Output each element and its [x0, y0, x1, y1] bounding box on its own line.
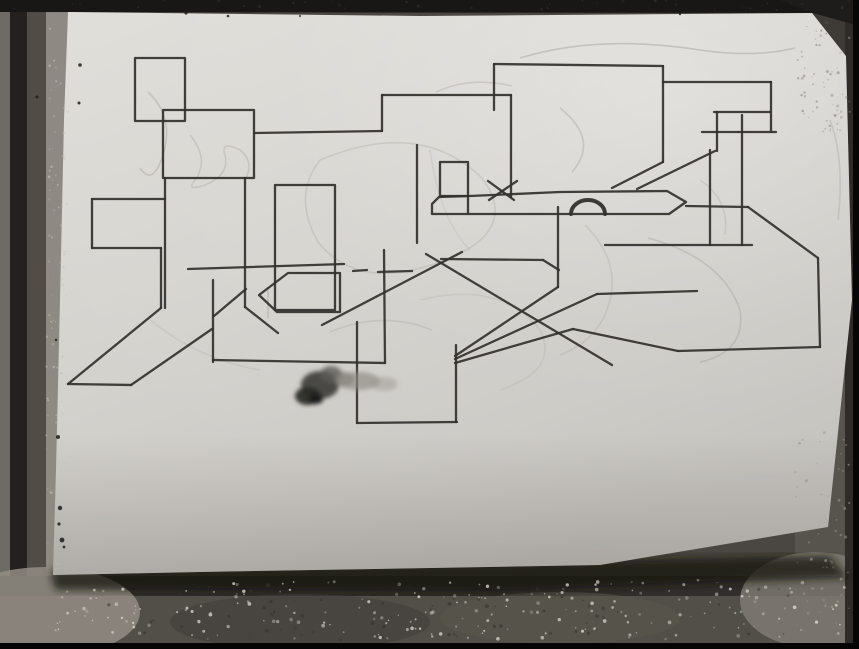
tile-speckle	[431, 605, 433, 607]
tile-speckle	[796, 486, 798, 488]
tile-speckle	[121, 617, 123, 619]
tile-speckle	[137, 6, 139, 8]
bg-shape	[853, 0, 859, 649]
tile-speckle	[453, 598, 455, 600]
dark-speck	[679, 13, 681, 15]
photo-scene	[0, 0, 859, 649]
tile-speckle	[431, 635, 433, 637]
tile-speckle	[685, 596, 689, 600]
tile-speckle	[841, 505, 843, 507]
tile-speckle	[801, 581, 804, 584]
tile-speckle	[456, 601, 458, 603]
tile-speckle	[237, 602, 239, 604]
tile-speckle	[107, 617, 109, 619]
tile-speckle	[507, 628, 508, 629]
tile-speckle	[506, 598, 509, 601]
tile-speckle	[611, 606, 614, 609]
tile-speckle	[845, 96, 848, 99]
tile-speckle	[530, 610, 534, 614]
tile-speckle	[808, 117, 809, 118]
tile-speckle	[816, 30, 817, 31]
tile-speckle	[266, 583, 270, 587]
tile-speckle	[494, 605, 496, 607]
tile-speckle	[60, 372, 62, 374]
tile-speckle	[588, 605, 591, 608]
tile-speckle	[60, 83, 62, 85]
tile-speckle	[293, 612, 295, 614]
tile-speckle	[566, 583, 569, 586]
tile-speckle	[610, 583, 612, 585]
tile-speckle	[755, 596, 758, 599]
tile-speckle	[839, 130, 841, 132]
tile-speckle	[406, 628, 409, 631]
tile-speckle	[668, 621, 672, 625]
tile-speckle	[63, 253, 65, 255]
tile-speckle	[541, 636, 545, 640]
tile-speckle	[62, 356, 64, 358]
tile-speckle	[63, 289, 64, 290]
tile-speckle	[51, 327, 53, 329]
tile-speckle	[479, 584, 481, 586]
tile-speckle	[185, 590, 187, 592]
tile-speckle	[62, 132, 65, 135]
dark-speck	[63, 546, 66, 549]
tile-speckle	[736, 634, 740, 638]
tile-speckle	[747, 632, 750, 635]
tile-speckle	[243, 5, 245, 7]
tile-speckle	[848, 502, 850, 504]
tile-speckle	[825, 33, 827, 35]
tile-speckle	[778, 618, 780, 620]
tile-speckle	[312, 631, 315, 634]
tile-speckle	[365, 605, 367, 607]
dark-speck	[60, 538, 65, 543]
tile-speckle	[831, 606, 833, 608]
tile-speckle	[831, 94, 834, 97]
tile-speckle	[729, 606, 731, 608]
tile-speckle	[52, 343, 55, 346]
tile-speckle	[832, 608, 834, 610]
tile-speckle	[638, 613, 641, 616]
tile-speckle	[704, 613, 706, 615]
dark-speck	[78, 102, 81, 105]
tile-speckle	[801, 77, 804, 80]
tile-speckle	[729, 588, 732, 591]
tile-speckle	[840, 453, 842, 455]
tile-speckle	[834, 530, 837, 533]
dark-speck	[58, 506, 62, 510]
tile-speckle	[48, 260, 50, 262]
tile-speckle	[58, 206, 60, 208]
tile-speckle	[794, 471, 797, 474]
tile-speckle	[836, 67, 837, 68]
tile-speckle	[837, 601, 839, 603]
tile-speckle	[822, 131, 824, 133]
tile-speckle	[815, 44, 817, 46]
tile-speckle	[834, 114, 837, 117]
tile-speckle	[111, 631, 114, 634]
tile-speckle	[784, 607, 786, 609]
tile-speckle	[837, 129, 838, 130]
tile-speckle	[382, 625, 385, 628]
tile-speckle	[748, 595, 750, 597]
tile-speckle	[52, 366, 55, 369]
tile-speckle	[67, 98, 68, 99]
tile-speckle	[816, 106, 819, 109]
tile-speckle	[823, 82, 824, 83]
tile-speckle	[63, 340, 65, 342]
tile-speckle	[59, 558, 60, 559]
tile-speckle	[414, 592, 416, 594]
bg-shape	[10, 0, 27, 649]
tile-speckle	[836, 109, 838, 111]
tile-speckle	[431, 610, 434, 613]
tile-speckle	[491, 613, 493, 615]
tile-speckle	[826, 21, 828, 23]
tile-speckle	[628, 637, 630, 639]
tile-speckle	[65, 383, 66, 384]
tile-speckle	[385, 622, 387, 624]
tile-speckle	[837, 468, 839, 470]
tile-speckle	[477, 597, 481, 601]
tile-speckle	[848, 608, 849, 609]
tile-speckle	[801, 110, 804, 113]
tile-speckle	[803, 592, 806, 595]
tile-speckle	[816, 463, 818, 465]
tile-speckle	[848, 464, 850, 466]
tile-speckle	[61, 319, 63, 321]
tile-speckle	[61, 401, 63, 403]
tile-speckle	[53, 320, 55, 322]
tile-speckle	[602, 616, 605, 619]
tile-speckle	[102, 590, 105, 593]
tile-speckle	[236, 583, 239, 586]
tile-speckle	[575, 630, 578, 633]
tile-speckle	[482, 632, 484, 634]
photo-of-drawing	[0, 0, 859, 649]
tile-speckle	[581, 630, 584, 633]
tile-speckle	[778, 588, 780, 590]
tile-speckle	[66, 203, 68, 205]
tile-speckle	[60, 224, 63, 227]
tile-speckle	[651, 622, 653, 624]
tile-speckle	[843, 439, 845, 441]
tile-speckle	[481, 597, 483, 599]
tile-speckle	[249, 589, 252, 592]
tile-speckle	[344, 7, 346, 9]
tile-speckle	[842, 94, 843, 95]
tile-speckle	[601, 606, 605, 610]
tile-speckle	[53, 115, 55, 117]
tile-speckle	[848, 37, 850, 39]
tile-speckle	[762, 4, 764, 6]
tile-speckle	[483, 630, 485, 632]
tile-speckle	[202, 630, 205, 633]
tile-speckle	[582, 600, 583, 601]
tile-speckle	[821, 587, 824, 590]
tile-speckle	[409, 585, 411, 587]
tile-speckle	[807, 612, 810, 615]
tile-speckle	[754, 600, 757, 603]
tile-speckle	[804, 68, 805, 69]
tile-speckle	[520, 591, 524, 595]
tile-speckle	[561, 591, 564, 594]
tile-speckle	[48, 234, 50, 236]
tile-speckle	[57, 563, 59, 565]
tile-speckle	[54, 131, 57, 134]
tile-speckle	[48, 175, 51, 178]
tile-speckle	[84, 615, 86, 617]
tile-speckle	[66, 295, 67, 296]
tile-speckle	[56, 367, 58, 369]
tile-speckle	[139, 608, 141, 610]
tile-speckle	[738, 627, 740, 629]
tile-speckle	[85, 610, 88, 613]
tile-speckle	[575, 627, 577, 629]
tile-speckle	[236, 593, 237, 594]
tile-speckle	[54, 629, 56, 631]
tile-speckle	[836, 519, 838, 521]
tile-speckle	[843, 507, 846, 510]
tile-speckle	[242, 590, 245, 593]
tile-speckle	[53, 277, 54, 278]
tile-speckle	[297, 620, 301, 624]
tile-speckle	[824, 128, 826, 130]
tile-speckle	[54, 568, 56, 570]
tile-speckle	[800, 51, 802, 53]
tile-speckle	[382, 602, 384, 604]
tile-speckle	[485, 604, 489, 608]
dark-speck	[184, 11, 187, 14]
tile-speckle	[65, 251, 66, 252]
tile-speckle	[718, 603, 721, 606]
tile-speckle	[388, 620, 389, 621]
tile-speckle	[546, 5, 548, 7]
tile-speckle	[840, 116, 843, 119]
tile-speckle	[613, 600, 616, 603]
tile-speckle	[49, 27, 52, 30]
tile-speckle	[65, 153, 66, 154]
tile-speckle	[343, 631, 345, 633]
tile-speckle	[293, 626, 297, 630]
tile-speckle	[198, 586, 200, 588]
tile-speckle	[71, 3, 73, 5]
tile-speckle	[386, 637, 388, 639]
tile-speckle	[587, 631, 591, 635]
tile-speckle	[848, 100, 850, 102]
tile-speckle	[443, 596, 444, 597]
tile-speckle	[56, 452, 58, 454]
tile-speckle	[826, 566, 828, 568]
tile-speckle	[373, 611, 376, 614]
tile-speckle	[556, 593, 558, 595]
tile-speckle	[338, 3, 341, 6]
tile-speckle	[65, 462, 66, 463]
tile-speckle	[378, 634, 379, 635]
tile-speckle	[843, 586, 846, 589]
tile-speckle	[596, 580, 600, 584]
tile-speckle	[417, 595, 420, 598]
tile-speckle	[371, 621, 375, 625]
tile-speckle	[749, 7, 751, 9]
tile-speckle	[496, 637, 500, 641]
tile-speckle	[478, 625, 479, 626]
tile-speckle	[632, 590, 634, 592]
tile-speckle	[333, 580, 336, 583]
tile-speckle	[248, 602, 252, 606]
tile-speckle	[96, 598, 97, 599]
tile-speckle	[361, 598, 363, 600]
tile-speckle	[447, 633, 450, 636]
tile-speckle	[713, 627, 715, 629]
tile-speckle	[800, 94, 802, 96]
tile-speckle	[249, 637, 251, 639]
marker-segment	[686, 206, 748, 207]
tile-speckle	[63, 413, 64, 414]
tile-speckle	[824, 604, 827, 607]
tile-speckle	[395, 593, 398, 596]
tile-speckle	[270, 613, 273, 616]
tile-speckle	[453, 633, 456, 636]
bg-shape	[0, 0, 10, 649]
tile-speckle	[627, 621, 630, 624]
tile-speckle	[329, 624, 330, 625]
tile-speckle	[55, 414, 57, 416]
tile-speckle	[282, 583, 284, 585]
tile-speckle	[243, 593, 245, 595]
tile-speckle	[819, 611, 821, 613]
tile-speckle	[823, 599, 826, 602]
tile-speckle	[405, 1, 408, 4]
tile-speckle	[50, 166, 52, 168]
tile-speckle	[294, 600, 295, 601]
tile-speckle	[382, 637, 385, 640]
tile-speckle	[62, 278, 63, 279]
tile-speckle	[801, 439, 803, 441]
tile-speckle	[51, 295, 52, 296]
tile-speckle	[74, 611, 75, 612]
tile-speckle	[293, 637, 295, 639]
tile-speckle	[841, 6, 844, 9]
tile-speckle	[133, 612, 135, 614]
tile-speckle	[642, 582, 645, 585]
tile-speckle	[289, 589, 291, 591]
tile-speckle	[549, 3, 551, 5]
tile-speckle	[258, 5, 261, 8]
tile-speckle	[625, 615, 628, 618]
tile-speckle	[746, 589, 749, 592]
tile-speckle	[425, 611, 427, 613]
tile-speckle	[62, 266, 64, 268]
tile-speckle	[806, 26, 807, 27]
tile-speckle	[484, 597, 486, 599]
tile-speckle	[812, 83, 814, 85]
tile-speckle	[49, 491, 51, 493]
tile-speckle	[844, 535, 847, 538]
tile-speckle	[57, 623, 59, 625]
tile-speckle	[703, 591, 705, 593]
tile-speckle	[745, 7, 746, 8]
tile-speckle	[50, 89, 51, 90]
tile-speckle	[493, 625, 496, 628]
tile-speckle	[835, 604, 838, 607]
tile-speckle	[796, 624, 797, 625]
tile-speckle	[58, 262, 60, 264]
tile-speckle	[207, 638, 208, 639]
tile-speckle	[682, 583, 685, 586]
tile-speckle	[58, 390, 59, 391]
tile-speckle	[836, 105, 839, 108]
tile-speckle	[415, 628, 417, 630]
marker-segment	[384, 250, 385, 363]
tile-speckle	[575, 610, 577, 612]
tile-speckle	[595, 628, 598, 631]
tile-speckle	[837, 71, 840, 74]
tile-speckle	[48, 198, 51, 201]
tile-speckle	[631, 581, 633, 583]
tile-speckle	[820, 29, 822, 31]
tile-speckle	[58, 628, 60, 630]
tile-speckle	[548, 596, 551, 599]
tile-speckle	[823, 431, 826, 434]
tile-speckle	[55, 321, 57, 323]
tile-speckle	[497, 586, 500, 589]
tile-speckle	[54, 66, 56, 68]
tile-speckle	[801, 3, 803, 5]
tile-speckle	[373, 635, 376, 638]
bg-shape	[440, 592, 680, 644]
tile-speckle	[827, 79, 829, 81]
tile-speckle	[743, 623, 745, 625]
tile-speckle	[57, 503, 58, 504]
tile-speckle	[464, 601, 467, 604]
tile-speckle	[837, 632, 840, 635]
tile-speckle	[818, 533, 820, 535]
tile-speckle	[536, 611, 539, 614]
tile-speckle	[764, 585, 767, 588]
tile-speckle	[811, 587, 814, 590]
tile-speckle	[820, 441, 821, 442]
tile-speckle	[812, 110, 814, 112]
tile-speckle	[838, 499, 841, 502]
tile-speckle	[398, 615, 399, 616]
tile-speckle	[455, 626, 457, 628]
dark-speck	[299, 15, 301, 17]
tile-speckle	[422, 587, 425, 590]
tile-speckle	[59, 463, 61, 465]
tile-speckle	[690, 616, 691, 617]
tile-speckle	[331, 1, 332, 2]
tile-speckle	[829, 73, 831, 75]
tile-speckle	[697, 579, 700, 582]
tile-speckle	[565, 609, 566, 610]
tile-speckle	[467, 637, 469, 639]
tile-speckle	[848, 1, 850, 3]
tile-speckle	[417, 5, 420, 8]
tile-speckle	[61, 341, 62, 342]
tile-speckle	[46, 448, 47, 449]
tile-speckle	[806, 600, 808, 602]
tile-speckle	[227, 625, 230, 628]
marker-segment	[357, 422, 457, 423]
tile-speckle	[803, 75, 806, 78]
tile-speckle	[358, 607, 360, 609]
tile-speckle	[808, 541, 810, 543]
dark-speck	[57, 522, 60, 525]
tile-speckle	[272, 620, 276, 624]
marker-segment	[68, 384, 131, 385]
tile-speckle	[842, 470, 844, 472]
